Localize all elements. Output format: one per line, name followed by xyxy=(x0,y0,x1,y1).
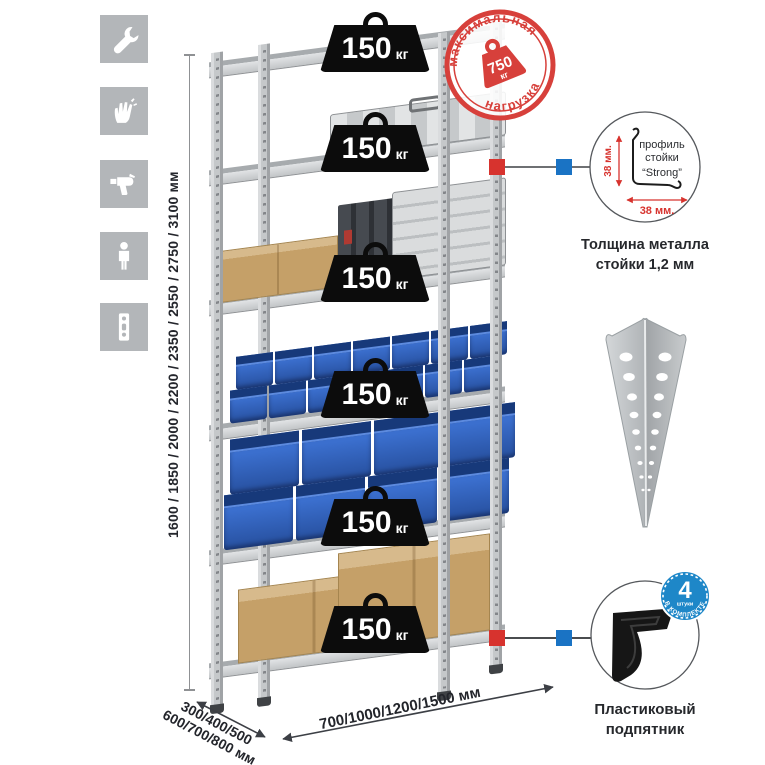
perforated-strip-icon xyxy=(100,303,148,351)
kit-badge-unit: штуки xyxy=(677,602,694,608)
blue-bin-large xyxy=(446,402,515,466)
blue-bin-large xyxy=(230,431,299,495)
callout-marker-red xyxy=(489,630,505,646)
shelf-load-badge: 150кг xyxy=(320,242,430,302)
rack-upright-back-right xyxy=(438,32,450,696)
blue-bin xyxy=(269,381,306,419)
plastic-foot-detail-circle: 4 штуки в комплекте xyxy=(585,568,725,700)
profile-label-3: “Strong” xyxy=(642,167,682,179)
height-dimension-line xyxy=(189,55,190,690)
blue-bin xyxy=(230,386,267,424)
rack-upright-front-left xyxy=(211,52,223,708)
height-dimension-label: 1600 / 1850 / 2000 / 2200 / 2350 / 2550 … xyxy=(163,160,183,550)
blue-bin-large xyxy=(224,486,293,550)
blue-bin-large xyxy=(374,412,443,476)
shelf-load-badge: 150кг xyxy=(320,12,430,72)
plastic-foot-caption: Пластиковый подпятник xyxy=(578,700,712,741)
blue-bin-large xyxy=(302,421,371,485)
profile-label-1: профиль xyxy=(639,139,685,151)
rack-foot xyxy=(489,664,503,675)
wrench-icon xyxy=(100,15,148,63)
callout-marker-red xyxy=(489,159,505,175)
callout-line-foot xyxy=(503,637,593,639)
shelf-load-badge: 150кг xyxy=(320,358,430,418)
shelf-load-badge: 150кг xyxy=(320,593,430,653)
blue-bin xyxy=(236,352,273,390)
profile-label-2: стойки xyxy=(645,152,679,164)
drill-icon xyxy=(100,160,148,208)
profile-dim-vertical: 38 мм. xyxy=(603,145,614,177)
profile-dim-horizontal: 38 мм. xyxy=(640,205,675,217)
blue-bin xyxy=(275,347,312,385)
kit-badge-value: 4 xyxy=(678,577,692,604)
callout-marker-blue xyxy=(556,630,572,646)
product-illustration: 1600 / 1850 / 2000 / 2200 / 2350 / 2550 … xyxy=(0,0,765,765)
shelf-load-badge: 150кг xyxy=(320,112,430,172)
shelf-load-badge: 150кг xyxy=(320,486,430,546)
person-icon xyxy=(100,232,148,280)
profile-detail-circle: 38 мм. 38 мм. профиль стойки “Strong” xyxy=(575,108,715,233)
profile-caption: Толщина металла стойки 1,2 мм xyxy=(575,236,715,275)
callout-marker-blue xyxy=(556,159,572,175)
angle-post-image xyxy=(598,302,694,532)
gloves-icon xyxy=(100,87,148,135)
